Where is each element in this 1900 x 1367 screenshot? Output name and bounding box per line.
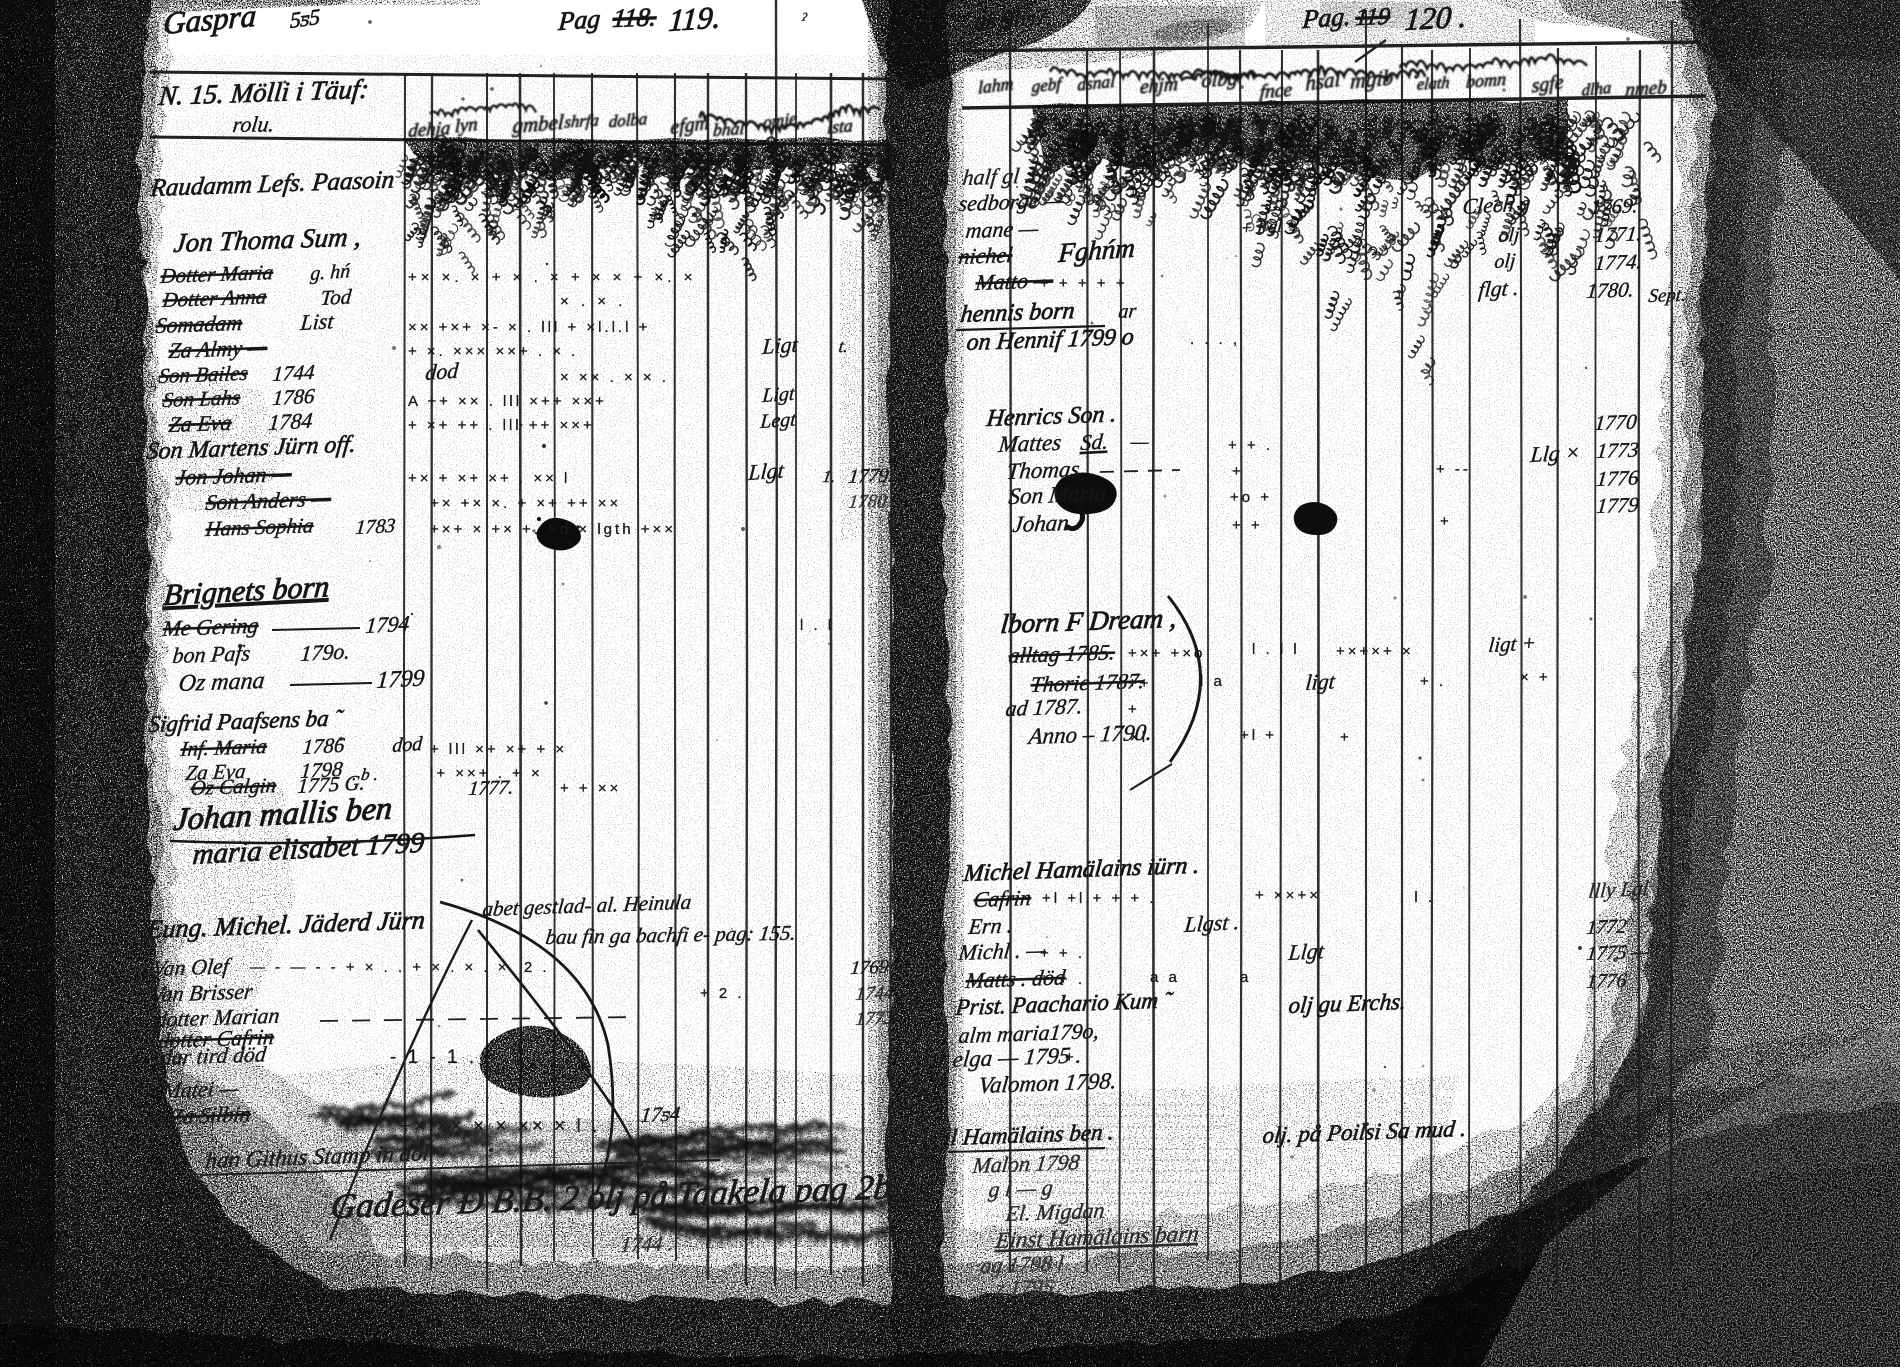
svg-text:Me Gering: Me Gering [160,613,259,641]
svg-text:Llgt: Llgt [747,457,786,485]
svg-text:gmbel: gmbel [512,110,565,138]
svg-text:1771.: 1771. [1593,221,1643,247]
svg-text:+ + .: + + . [1040,971,1085,988]
svg-text:. . . ,: . . . , [1190,331,1240,348]
svg-text:+ lll ×+ ×+ + ×: + lll ×+ ×+ + × [430,741,567,758]
svg-text:lborn F Dream ,: lborn F Dream , [999,603,1178,639]
svg-text:+× ×. × + × . × + × ×: +× ×. × + × . × + × × + ×. × [408,269,696,286]
svg-text:Valomon 1798.: Valomon 1798. [977,1067,1118,1098]
svg-text:flgt .: flgt . [1478,275,1520,302]
svg-text:1770: 1770 [1593,410,1638,435]
svg-text:× ×× . × × .: × ×× . × × . [560,369,669,386]
svg-text:l . l: l . l [800,617,834,634]
svg-text:+ +: + + [1232,517,1263,534]
svg-text:118.: 118. [611,2,658,33]
svg-text:Llgt: Llgt [1287,938,1326,965]
svg-text:+ + + + +: + + + + + [1040,275,1127,292]
svg-text:Son Anders —: Son Anders — [204,486,332,515]
svg-text:+× ×× × × ××: +× ×× × × ×× × l . [400,1116,600,1137]
svg-text:Ligt: Ligt [761,331,800,359]
svg-text:nmeb: nmeb [1625,77,1668,101]
svg-text:+×+ +×o: +×+ +×o [1128,645,1205,662]
svg-text:+: + [1440,513,1452,530]
svg-text:1786: 1786 [272,384,316,410]
svg-text:olj: olj [1498,224,1521,247]
svg-text:l . l l: l . l l [1252,641,1300,658]
svg-text:+l +l + + + .: +l +l + + + . [1042,890,1156,907]
svg-text:1744: 1744 [272,360,316,386]
svg-text:+×+ × +× +. ×d × lgth +×: +×+ × +× +. ×d × lgth +×× [430,521,676,538]
svg-text:. l .: . l . [1400,889,1435,906]
svg-text:Son Maria: Son Maria [1007,480,1107,509]
svg-text:Thomas: Thomas [1005,455,1081,484]
svg-text:fnce: fnce [1259,80,1293,104]
svg-text:hennis born: hennis born [959,298,1076,328]
svg-text:Henrics Son .: Henrics Son . [984,401,1118,432]
svg-text:1769.: 1769. [1589,193,1639,219]
svg-text:1784: 1784 [268,408,314,435]
svg-text:+: + [1128,701,1140,718]
svg-text:1776: 1776 [1585,970,1627,993]
svg-text:+× +× ×. + ×+ ++ ××: +× +× ×. + ×+ ++ ×× [430,495,621,512]
svg-text:Dotter Anna: Dotter Anna [160,284,267,312]
svg-text:+: + [1340,729,1352,746]
svg-text:dar tird död: dar tird död [159,1041,268,1070]
svg-text:Fghńm: Fghńm [1057,233,1136,268]
svg-text:120 .: 120 . [1403,0,1468,37]
svg-text:A ++ ×× . lll ×++ ××+: A ++ ×× . lll ×++ ××+ [408,393,607,410]
svg-text:Za Silbin: Za Silbin [169,1101,252,1129]
svg-text:+o +: +o + [1230,489,1272,506]
svg-text:elga — 1795 .: elga — 1795 . [951,1042,1083,1072]
svg-text:1780.: 1780. [1585,277,1635,303]
svg-text:dod: dod [425,358,461,385]
svg-text:×× +×+ ×- × . lll + ×l.l.l: ×× +×+ ×- × . lll + ×l.l.l + [408,319,650,336]
svg-text:Son Bailes: Son Bailes [157,361,249,388]
svg-text:× +: × + [1520,669,1551,686]
svg-text:1780: 1780 [847,491,888,513]
svg-text:a: a [1240,969,1251,986]
svg-text:Llg ×: Llg × [1529,439,1582,467]
svg-text:Matei —: Matei — [160,1075,240,1103]
svg-text:1794: 1794 [365,611,411,638]
svg-text:1.: 1. [821,467,836,486]
svg-text:— - — - - + × . . + × .: — - — - - + × . . + × . × . ×. 2 . [250,959,550,976]
svg-text:ligt: ligt [1305,668,1337,695]
svg-text:1779.: 1779. [847,464,894,488]
svg-text:olj gu Erchs.: olj gu Erchs. [1287,988,1407,1018]
svg-text:1774.: 1774. [1593,249,1643,275]
svg-text:+: + [1065,1049,1077,1066]
svg-text:Sd.: Sd. [1080,429,1110,455]
svg-text:1776: 1776 [1595,466,1640,491]
svg-text:5ƽ5: 5ƽ5 [290,4,320,33]
svg-text:× . × .: × . × . [560,293,626,310]
svg-text:1769: 1769 [849,957,890,979]
svg-text:lsta: lsta [827,115,854,137]
svg-text:+ 2 .: + 2 . [700,985,745,1002]
svg-text:+ ××+×: + ××+× [1255,887,1321,904]
svg-text:1799: 1799 [375,665,425,694]
svg-text:sgfe: sgfe [1532,71,1564,97]
svg-text:+ + ××: + + ×× [560,780,621,797]
svg-text:Van Olef: Van Olef [151,953,233,981]
svg-text:17ƽ4: 17ƽ4 [639,1102,681,1127]
svg-text:+ .: + . [1420,673,1446,690]
svg-text:shrfa: shrfa [564,110,600,131]
svg-text:Van Brisser: Van Brisser [149,978,254,1007]
svg-text:Son Lahs: Son Lahs [161,385,241,412]
svg-text:1783: 1783 [355,515,397,539]
svg-text:- 1 - 1 .: - 1 - 1 . [390,1047,477,1068]
svg-text:llly Lgl: llly Lgl [1588,876,1650,903]
svg-text:×l: ×l [1130,729,1148,746]
svg-text:El. Migdan: El. Migdan [1003,1198,1105,1226]
svg-text:dod: dod [392,733,424,757]
svg-text:+ --: + -- [1436,461,1471,478]
svg-text:Hans Sophia: Hans Sophia [203,513,314,541]
svg-text:Llgst .: Llgst . [1183,909,1241,937]
svg-text:a a: a a [1150,969,1180,986]
svg-text:Inf. Maria: Inf. Maria [178,734,268,761]
svg-text:Mattes: Mattes [996,429,1062,457]
svg-text:Tod: Tod [320,284,353,310]
svg-text:179o.: 179o. [300,638,352,666]
svg-text:+ ×. ××× ××+ . × .: + ×. ××× ××+ . × . [408,343,578,360]
svg-text:1773: 1773 [854,1008,894,1030]
svg-text:1786: 1786 [302,733,346,759]
svg-text:Pag.: Pag. [1301,2,1352,35]
svg-text:Johan: Johan [1011,509,1070,537]
svg-text:g l — g: g l — g [987,1175,1054,1202]
svg-text:gebf: gebf [1032,74,1064,96]
svg-text:List: List [299,308,336,335]
svg-text:rolu.: rolu. [231,111,275,137]
svg-text:sedborge —: sedborge — [957,187,1065,216]
svg-text:1772: 1772 [1585,916,1627,939]
svg-text:elath: elath [1416,73,1450,94]
svg-text:+× + ×+ ×+ . ×× l: +× + ×+ ×+ . ×× l [408,470,570,487]
svg-text:alltag 1785.: alltag 1785. [1007,639,1116,668]
svg-text:+ + .: + + . [1228,437,1273,454]
svg-text:ar: ar [1118,300,1138,323]
svg-text:Legt: Legt [759,408,797,433]
svg-text:Za Eva: Za Eva [167,410,232,437]
svg-text:bomn: bomn [1465,69,1506,92]
svg-text:ad 1787.: ad 1787. [1004,693,1084,721]
svg-text:+l +: +l + [1240,727,1277,744]
svg-text:half gl .: half gl . [961,163,1031,190]
svg-text:1779: 1779 [1595,493,1640,518]
svg-text:+ Fgl: + Fgl [1240,216,1283,238]
svg-text:1773: 1773 [1595,438,1639,463]
svg-text:ligt +: ligt + [1488,630,1537,657]
svg-text:l a: l a [1200,673,1225,690]
svg-text:mane —: mane — [964,215,1040,243]
svg-text:1775 —: 1775 — [1585,941,1650,965]
svg-text:+ ×+ ++ . lll ++ ××+: + ×+ ++ . lll ++ ××+ [408,417,595,434]
svg-text:Malon 1798: Malon 1798 [970,1149,1080,1178]
svg-text:dlha: dlha [1581,78,1611,100]
svg-text:g. hń: g. hń [310,260,351,285]
svg-text:+ + .: + + . [1040,945,1085,962]
svg-text:z 1795: z 1795 [993,1274,1055,1301]
svg-text:Clech g: Clech g [1462,190,1532,219]
svg-text:1744: 1744 [854,983,895,1005]
svg-text:dolba: dolba [608,109,647,131]
svg-text:Somadam: Somadam [154,310,243,338]
svg-text:Sept.: Sept. [1647,285,1687,307]
svg-text:Jon Johan —: Jon Johan — [174,461,293,490]
svg-text:Ligt: Ligt [761,383,796,407]
svg-text:++: ++ [1128,675,1152,692]
svg-text:1777.: 1777. [467,776,514,800]
svg-text:Oz mana: Oz mana [177,668,266,697]
svg-text:Za Almy —: Za Almy — [167,335,268,363]
svg-text:+: + [1232,463,1244,480]
svg-text:bau fin ga bachfi e- pag: 1: bau fin ga bachfi e- pag: 155. [544,921,797,949]
svg-text:Pag: Pag [557,4,602,36]
svg-text:119.: 119. [668,0,722,38]
svg-text:Cafrin: Cafrin [972,885,1032,912]
svg-text:nichel: nichel [957,242,1013,269]
svg-text:olj: olj [1494,250,1517,273]
svg-text:Ern .: Ern . [966,912,1014,939]
svg-text:Michl . —: Michl . — [956,937,1047,965]
svg-text:—: — [1128,431,1150,453]
svg-text:bon Pafs: bon Pafs [171,640,251,668]
svg-text:lyn: lyn [455,114,478,138]
svg-text:119: 119 [1354,4,1391,31]
svg-text:+×+×+ ×: +×+×+ × [1336,643,1414,660]
